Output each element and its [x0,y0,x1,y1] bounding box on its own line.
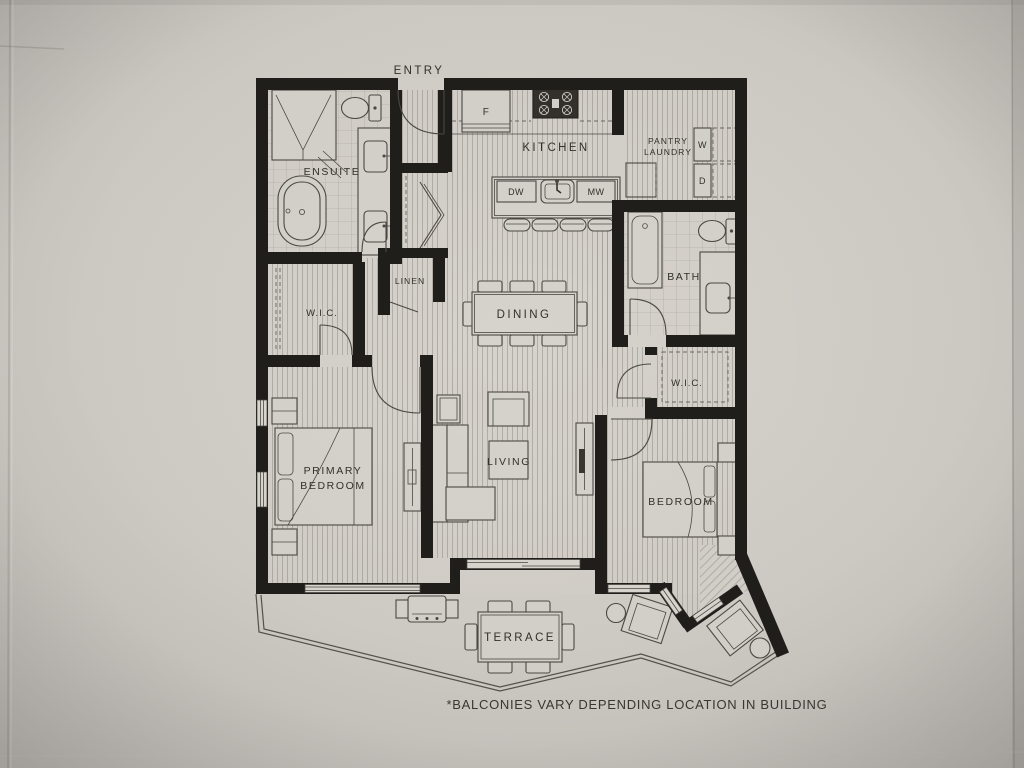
photo-vignette [0,0,1024,768]
floor-plan-image: ENTRY KITCHEN PANTRY LAUNDRY ENSUITE LIN… [0,0,1024,768]
floor-plan-photo: ENTRY KITCHEN PANTRY LAUNDRY ENSUITE LIN… [0,0,1024,768]
